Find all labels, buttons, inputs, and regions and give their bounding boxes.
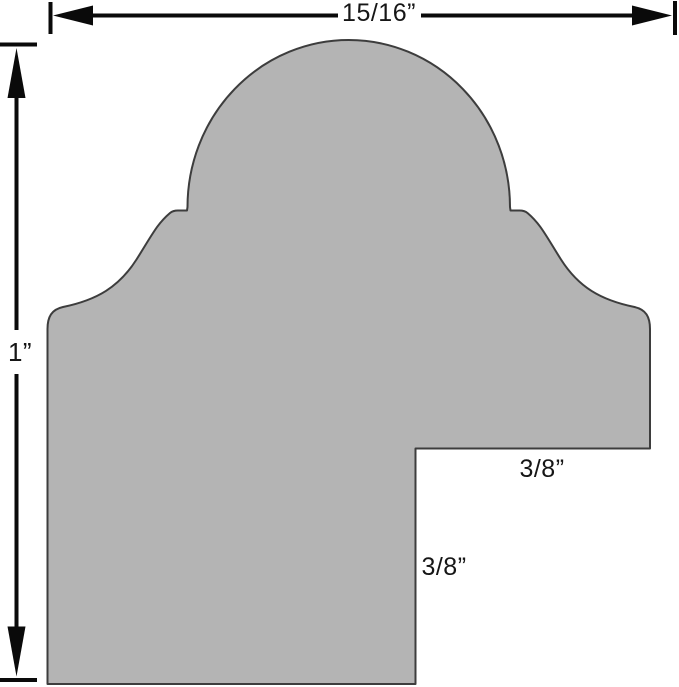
height-dimension-line-bottom-segment <box>15 374 19 630</box>
rabbet-depth-label: 3/8” <box>504 456 580 483</box>
width-dimension-line-left-segment <box>88 14 338 18</box>
height-dimension-label: 1” <box>0 338 40 366</box>
down-arrowhead-icon <box>8 627 26 677</box>
up-arrowhead-icon <box>8 48 26 98</box>
width-dimension-label: 15/16” <box>331 0 427 27</box>
width-right-extension-tick <box>673 1 677 35</box>
diagram-canvas <box>0 0 679 687</box>
left-arrowhead-icon <box>53 6 93 26</box>
height-dimension-line-top-segment <box>15 95 19 330</box>
profile-diagram: 15/16” 1” 3/8” 3/8” <box>0 0 679 687</box>
moulding-profile-shape <box>48 40 651 684</box>
rabbet-height-label: 3/8” <box>406 554 482 581</box>
width-dimension-line-right-segment <box>421 14 637 18</box>
right-arrowhead-icon <box>632 6 672 26</box>
width-left-extension-tick <box>49 2 53 34</box>
height-bottom-extension-tick <box>0 678 37 682</box>
height-top-extension-tick <box>0 43 37 47</box>
